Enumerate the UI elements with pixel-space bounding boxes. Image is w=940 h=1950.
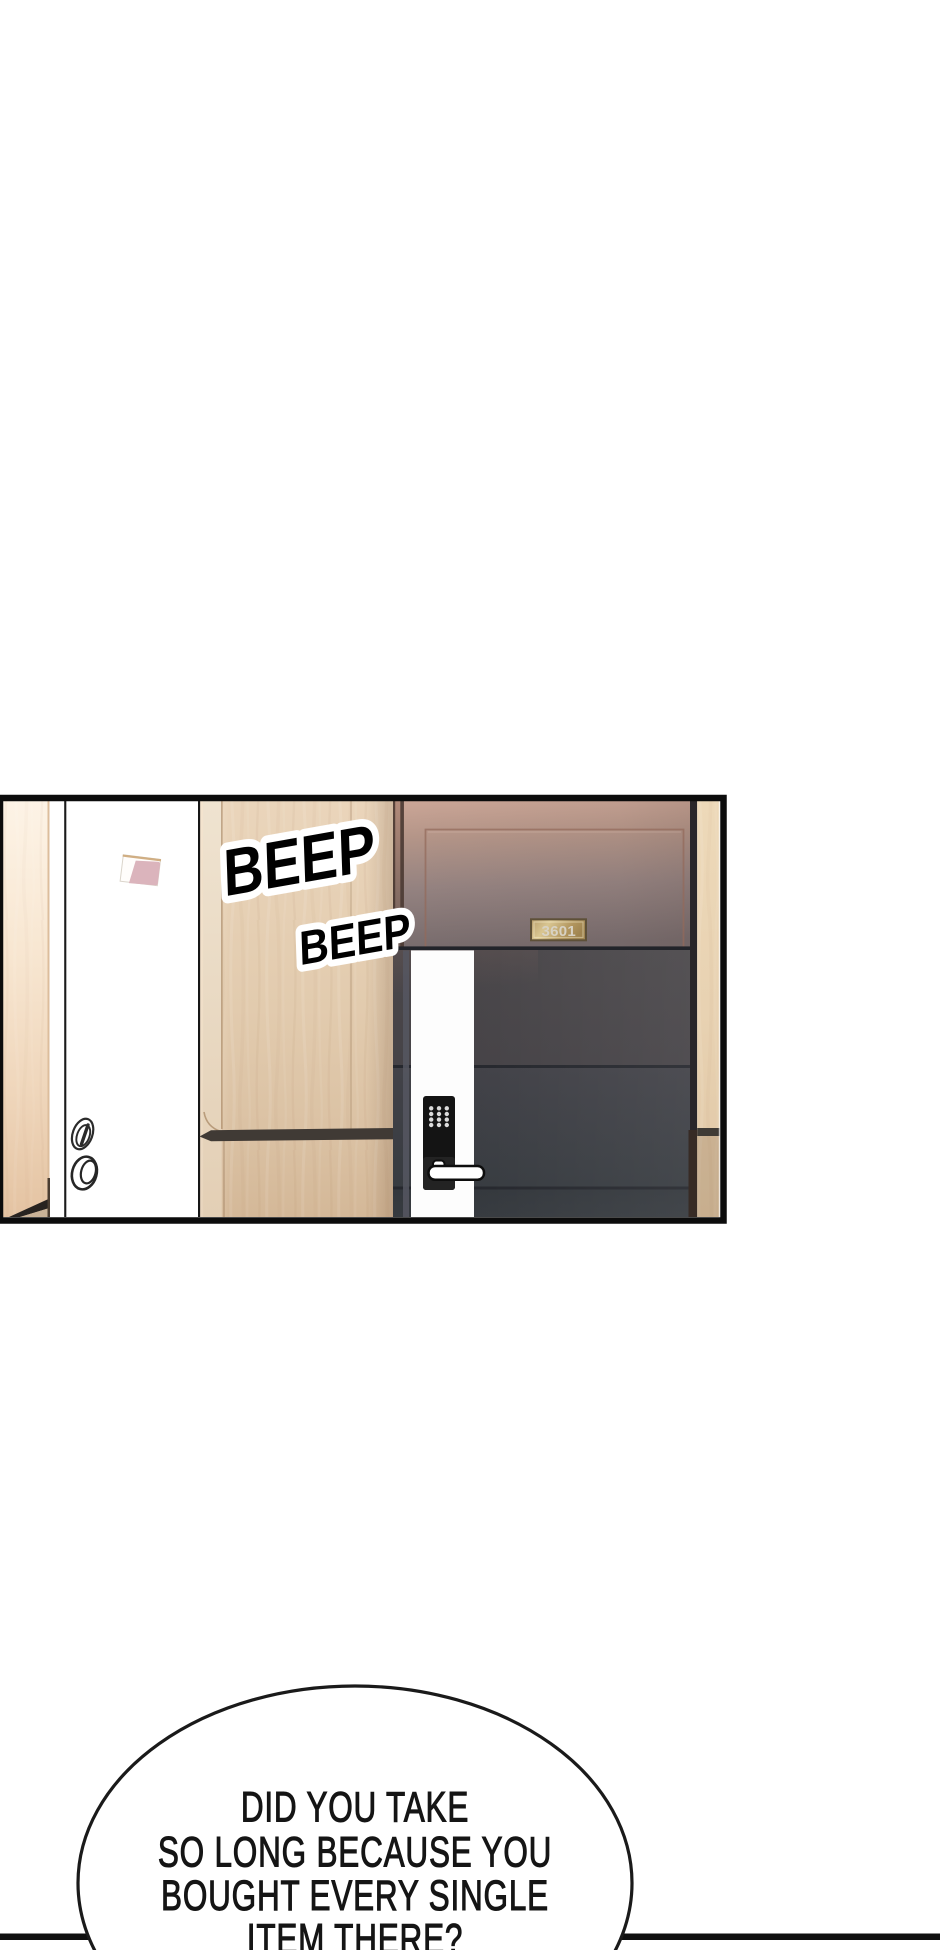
svg-text:DID YOU TAKE: DID YOU TAKE	[241, 1783, 469, 1831]
svg-text:SO LONG BECAUSE YOU: SO LONG BECAUSE YOU	[158, 1828, 552, 1876]
svg-text:BOUGHT EVERY SINGLE: BOUGHT EVERY SINGLE	[161, 1871, 549, 1919]
svg-text:3601: 3601	[542, 923, 577, 940]
svg-text:ITEM THERE?: ITEM THERE?	[247, 1915, 463, 1950]
